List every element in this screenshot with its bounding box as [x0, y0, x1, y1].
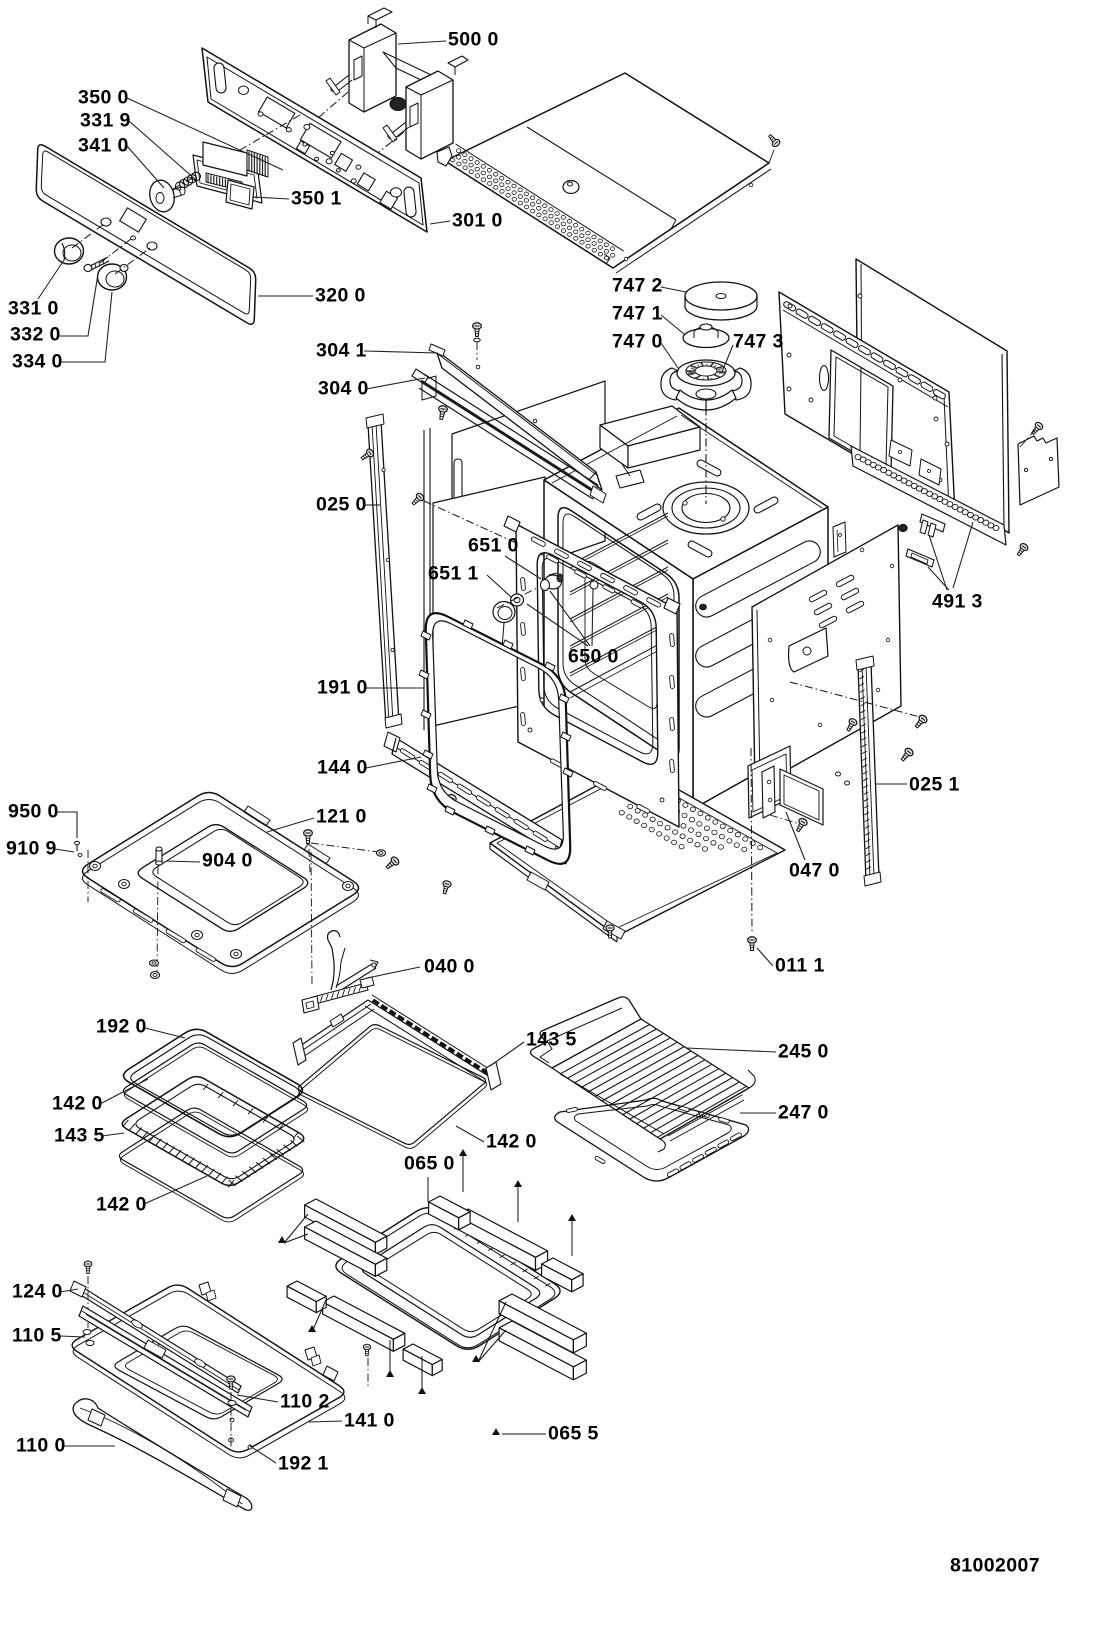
svg-text:110 5: 110 5: [12, 1325, 62, 1347]
svg-text:904 0: 904 0: [202, 850, 253, 872]
svg-text:320 0: 320 0: [315, 285, 366, 307]
svg-text:121 0: 121 0: [316, 806, 367, 828]
svg-text:025 1: 025 1: [909, 774, 960, 796]
svg-text:143 5: 143 5: [54, 1125, 105, 1147]
svg-text:144 0: 144 0: [317, 757, 368, 779]
svg-text:192 0: 192 0: [96, 1016, 147, 1038]
svg-text:350 0: 350 0: [78, 87, 129, 109]
svg-text:040 0: 040 0: [424, 956, 475, 978]
svg-text:110 2: 110 2: [280, 1391, 330, 1413]
svg-text:334 0: 334 0: [12, 351, 63, 373]
svg-text:301 0: 301 0: [452, 210, 503, 232]
svg-text:332 0: 332 0: [10, 324, 61, 346]
svg-text:650 0: 650 0: [568, 646, 619, 668]
svg-text:191 0: 191 0: [317, 677, 368, 699]
svg-text:245 0: 245 0: [778, 1041, 829, 1063]
svg-text:341 0: 341 0: [78, 135, 129, 157]
svg-text:065 0: 065 0: [404, 1153, 455, 1175]
svg-text:047 0: 047 0: [789, 860, 840, 882]
svg-text:142 0: 142 0: [486, 1131, 537, 1153]
svg-text:350 1: 350 1: [291, 188, 342, 210]
svg-text:500 0: 500 0: [448, 29, 499, 51]
svg-text:304 0: 304 0: [318, 378, 369, 400]
svg-text:747 2: 747 2: [612, 275, 663, 297]
svg-text:110 0: 110 0: [16, 1435, 66, 1457]
svg-text:747 3: 747 3: [733, 331, 784, 353]
svg-text:124 0: 124 0: [12, 1281, 63, 1303]
svg-text:651 1: 651 1: [428, 563, 479, 585]
svg-text:142 0: 142 0: [52, 1093, 103, 1115]
svg-text:81002007: 81002007: [950, 1555, 1040, 1577]
svg-text:950 0: 950 0: [8, 801, 59, 823]
svg-text:747 1: 747 1: [612, 303, 663, 325]
svg-text:910 9: 910 9: [6, 838, 57, 860]
svg-text:651 0: 651 0: [468, 535, 519, 557]
svg-text:331 9: 331 9: [80, 110, 131, 132]
svg-text:192 1: 192 1: [278, 1453, 329, 1475]
svg-text:011 1: 011 1: [775, 955, 825, 977]
svg-text:491 3: 491 3: [932, 591, 983, 613]
svg-text:143 5: 143 5: [526, 1029, 577, 1051]
svg-text:141 0: 141 0: [344, 1410, 395, 1432]
svg-text:025 0: 025 0: [316, 494, 367, 516]
svg-text:065 5: 065 5: [548, 1423, 599, 1445]
svg-text:747 0: 747 0: [612, 331, 663, 353]
svg-text:247 0: 247 0: [778, 1102, 829, 1124]
svg-text:304 1: 304 1: [316, 340, 367, 362]
svg-text:331 0: 331 0: [8, 298, 59, 320]
svg-text:142 0: 142 0: [96, 1194, 147, 1216]
